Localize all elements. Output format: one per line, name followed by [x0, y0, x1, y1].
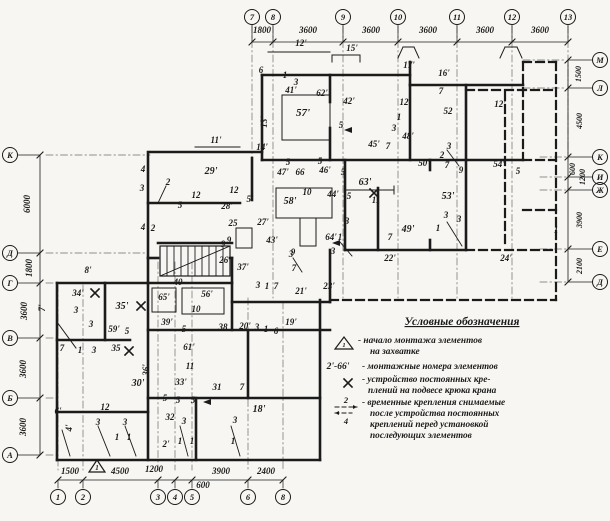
- element-number-label: 6: [259, 65, 264, 75]
- element-number-label: 5: [339, 120, 344, 130]
- element-number-label: 5: [178, 200, 183, 210]
- element-number-label: 9: [221, 239, 226, 249]
- legend-text: плений на подвесе крюка крана: [368, 385, 497, 396]
- dimension-text: 3600: [530, 25, 550, 35]
- element-number-label: 12: [400, 97, 410, 107]
- element-number-label: 2: [150, 223, 156, 233]
- dimension-text: 1800: [253, 25, 272, 35]
- dimension-text: 3600: [418, 25, 438, 35]
- legend-text: последующих элементов: [370, 430, 472, 441]
- element-number-label: 3: [95, 417, 101, 427]
- axis-bubble-label: Е: [596, 244, 603, 254]
- element-number-label: 1: [190, 436, 195, 446]
- dimension-text: 7': [37, 304, 47, 312]
- legend-text: - монтажные номера элементов: [362, 362, 498, 372]
- dimension-text: 1500: [574, 66, 583, 82]
- element-number-label: 7: [60, 343, 65, 353]
- legend-symbol: 2: [343, 395, 349, 405]
- element-number-label: 9: [227, 235, 232, 245]
- dimension-text: 3600: [475, 25, 495, 35]
- dimension-text: 3600: [19, 302, 29, 322]
- element-number-label: 3: [122, 417, 128, 427]
- element-number-label: 10: [303, 187, 313, 197]
- element-number-label: 3: [456, 214, 462, 224]
- element-number-label: 5: [176, 395, 181, 405]
- axis-bubble-label: 4: [172, 492, 177, 502]
- element-number-label: 7: [388, 232, 393, 242]
- element-number-label: 3: [232, 415, 238, 425]
- element-number-label: 12: [230, 185, 240, 195]
- element-number-label: 5: [191, 395, 196, 405]
- element-number-label: 59': [108, 324, 120, 334]
- element-number-label: 57': [296, 107, 310, 119]
- element-number-label: 20': [238, 321, 251, 331]
- legend-symbol: 1: [342, 342, 345, 349]
- axis-bubble-label: 2: [80, 492, 86, 502]
- element-number-label: 53': [442, 191, 455, 202]
- element-number-label: 5: [516, 166, 521, 176]
- element-number-label: 61': [183, 342, 195, 352]
- axis-bubble-label: 9: [341, 12, 346, 22]
- element-number-label: 7: [274, 281, 279, 291]
- dimension-text: 1200: [578, 169, 587, 185]
- element-number-label: 11: [372, 195, 381, 205]
- legend-text: креплений перед установкой: [370, 419, 488, 430]
- floor-plan-canvas: 112'15'17'16'61341'62'42'137125212'57'13…: [0, 0, 610, 521]
- element-number-label: 16': [438, 68, 450, 78]
- element-number-label: 7: [386, 141, 391, 151]
- dimension-text: 3600: [298, 25, 318, 35]
- element-number-label: 36': [141, 364, 151, 377]
- element-number-label: 15': [346, 43, 358, 53]
- thin-line: [398, 47, 403, 58]
- element-number-label: 1: [178, 436, 183, 446]
- legend-text: - начало монтажа элементов: [358, 336, 482, 346]
- element-number-label: 39': [160, 317, 173, 327]
- axis-bubble-label: К: [6, 150, 14, 160]
- axis-bubble-label: Д: [6, 248, 14, 258]
- axis-bubble-label: Ж: [595, 185, 605, 195]
- axis-bubble-label: В: [6, 333, 13, 343]
- element-number-label: 41': [284, 85, 297, 95]
- element-number-label: 45': [367, 139, 380, 149]
- arrowhead: [353, 405, 357, 409]
- element-number-label: 11': [210, 135, 222, 145]
- legend-symbol: 2'-66': [326, 362, 350, 372]
- element-number-label: 3: [344, 216, 350, 226]
- dimension-text: 2400: [256, 466, 276, 476]
- axis-bubble-label: 8: [271, 12, 276, 22]
- dimension-text: 600: [568, 163, 577, 175]
- element-number-label: 9: [459, 165, 464, 175]
- element-number-label: 3: [391, 123, 397, 133]
- leader-line: [158, 186, 166, 203]
- dimension-text: 3900: [575, 212, 584, 229]
- axis-bubble-label: 1: [56, 492, 60, 502]
- element-number-label: 3: [254, 322, 260, 332]
- element-number-label: 1: [115, 432, 120, 442]
- element-number-label: 7: [292, 263, 297, 273]
- element-number-label: 3: [288, 249, 294, 259]
- element-number-label: 54': [493, 159, 505, 169]
- element-number-label: 7: [240, 382, 245, 392]
- element-number-label: 24': [499, 253, 512, 263]
- axis-bubble-label: Б: [6, 393, 13, 403]
- axis-bubble-label: 8: [281, 492, 286, 502]
- element-number-label: 35': [115, 301, 129, 312]
- element-number-label: 63': [359, 177, 372, 188]
- fixture-rect: [236, 228, 252, 248]
- element-number-label: 12: [101, 402, 111, 412]
- legend-text: - устройство постоянных кре-: [362, 374, 490, 385]
- element-number-label: 66: [296, 167, 306, 177]
- element-number-label: 1: [554, 225, 559, 235]
- axis-bubble-label: Л: [596, 83, 604, 93]
- element-number-label: 33': [174, 377, 187, 387]
- element-number-label: 2: [165, 177, 171, 187]
- element-number-label: 43': [265, 235, 278, 245]
- dimension-text: 1200: [145, 464, 164, 474]
- leader-line: [62, 430, 70, 456]
- element-number-label: 5: [341, 167, 346, 177]
- element-number-label: 8': [84, 265, 92, 275]
- start-montage-number: 1: [95, 464, 99, 472]
- element-number-label: 32: [165, 412, 176, 422]
- axis-bubble-label: 3: [155, 492, 161, 502]
- legend-text: на захватке: [370, 347, 420, 357]
- element-number-label: 5: [182, 324, 187, 334]
- element-number-label: 37': [236, 262, 249, 272]
- legend-text: - временные крепления снимаемые: [362, 398, 505, 408]
- thin-line: [517, 47, 522, 58]
- element-number-label: 1: [265, 281, 270, 291]
- element-number-label: 12: [192, 190, 202, 200]
- element-number-label: 28': [220, 201, 233, 211]
- dimension-text: 4500: [575, 113, 584, 130]
- element-number-label: 30': [131, 378, 145, 389]
- element-number-label: 14': [256, 142, 268, 152]
- element-number-label: 4': [64, 424, 74, 433]
- dimension-text: 3600: [18, 360, 28, 380]
- element-number-label: 7: [439, 86, 444, 96]
- element-number-label: 3: [443, 210, 449, 220]
- element-number-label: 1: [231, 436, 236, 446]
- element-number-label: 22': [383, 253, 396, 263]
- element-number-label: 1: [78, 345, 83, 355]
- element-number-label: 3: [91, 345, 97, 355]
- element-number-label: 1: [436, 223, 441, 233]
- element-number-label: 47': [276, 167, 289, 177]
- element-number-label: 3: [88, 319, 94, 329]
- element-number-label: 58': [284, 196, 297, 207]
- element-number-label: 5: [125, 326, 130, 336]
- element-number-label: 40: [173, 277, 184, 287]
- element-number-label: 3: [139, 183, 145, 193]
- element-number-label: 7: [445, 160, 450, 170]
- element-number-label: 56': [201, 289, 213, 299]
- element-number-label: 27': [256, 217, 269, 227]
- element-number-label: 21': [294, 286, 307, 296]
- leader-line: [98, 426, 110, 456]
- element-number-label: 17': [403, 60, 415, 70]
- leader-line: [447, 222, 462, 246]
- axis-bubble-label: М: [595, 55, 604, 65]
- dimension-text: 6000: [22, 195, 32, 214]
- element-number-label: 62': [316, 88, 328, 98]
- element-number-label: 3: [446, 141, 452, 151]
- legend-symbol: 4: [343, 416, 348, 426]
- element-number-label: 35: [111, 343, 122, 353]
- element-number-label: 44': [326, 189, 339, 199]
- axis-bubble-label: 10: [394, 12, 403, 22]
- element-number-label: 34': [71, 288, 84, 298]
- element-number-label: 3: [330, 246, 336, 256]
- element-number-label: 42': [342, 96, 355, 106]
- element-number-label: 12': [295, 38, 307, 48]
- element-number-label: 31: [212, 382, 222, 392]
- element-number-label: 19': [285, 317, 297, 327]
- axis-bubble-label: И: [596, 172, 604, 182]
- element-number-label: 11: [186, 361, 195, 371]
- axis-bubble-label: 5: [190, 492, 195, 502]
- axis-bubble-label: 12: [508, 12, 517, 22]
- element-number-label: 1: [338, 232, 343, 242]
- axis-bubble-label: 7: [250, 12, 255, 22]
- element-number-label: 13': [259, 116, 269, 128]
- element-number-label: 12': [494, 99, 506, 109]
- plan-drawing: 112'15'17'16'61341'62'42'137125212'57'13…: [0, 0, 610, 521]
- axis-bubble-label: К: [596, 152, 604, 162]
- dimension-text: 3600: [18, 418, 28, 438]
- dimension-text: 3600: [361, 25, 381, 35]
- element-number-label: 1: [283, 70, 288, 80]
- element-number-label: 2': [161, 439, 170, 449]
- dimension-text: 600: [196, 480, 210, 490]
- element-number-label: 6: [274, 326, 279, 336]
- element-number-label: 4: [140, 164, 146, 174]
- element-number-label: 25: [228, 218, 239, 228]
- element-number-label: 3: [181, 416, 187, 426]
- legend-title: Условные обозначения: [405, 316, 520, 328]
- element-number-label: 26': [218, 255, 231, 265]
- dimension-text: 4500: [110, 466, 130, 476]
- dimension-text: 2100: [575, 258, 584, 275]
- element-number-label: 1: [397, 112, 402, 122]
- element-number-label: 46': [318, 165, 331, 175]
- fixture-rect: [300, 218, 316, 246]
- thin-line: [500, 47, 505, 58]
- axis-bubble-label: Д: [596, 277, 604, 287]
- element-number-label: 4: [140, 222, 146, 232]
- thin-line: [414, 47, 419, 58]
- element-number-label: 49': [401, 224, 415, 235]
- element-number-label: 23': [322, 281, 335, 291]
- element-number-label: 64': [325, 232, 337, 242]
- element-number-label: 1: [264, 324, 269, 334]
- element-number-label: 50': [418, 158, 430, 168]
- element-number-label: 65': [158, 292, 170, 302]
- element-number-label: 18': [253, 404, 266, 415]
- element-number-label: 1: [127, 432, 132, 442]
- element-number-label: 29': [204, 166, 218, 177]
- element-number-label: 48': [401, 131, 414, 141]
- axis-bubble-label: 11: [453, 12, 461, 22]
- mount-flag-icon: [203, 399, 211, 405]
- element-number-label: 5: [286, 157, 291, 167]
- element-number-label: 3: [73, 305, 79, 315]
- dimension-text: 1800: [24, 259, 34, 278]
- dimension-text: 3900: [211, 466, 231, 476]
- axis-bubble-label: 6: [246, 492, 251, 502]
- element-number-label: 6': [54, 406, 62, 416]
- element-number-label: 5': [246, 194, 254, 204]
- dimension-text: 1500: [61, 466, 80, 476]
- element-number-label: 52: [444, 106, 454, 116]
- axis-bubble-label: 13: [564, 12, 573, 22]
- element-number-label: 3: [255, 280, 261, 290]
- axis-bubble-label: Г: [6, 278, 13, 288]
- element-number-label: 10: [192, 304, 202, 314]
- element-number-label: 38: [218, 322, 229, 332]
- element-number-label: 5: [163, 393, 168, 403]
- mount-flag-icon: [344, 127, 352, 133]
- axis-bubble-label: А: [6, 450, 13, 460]
- legend-text: после устройства постоянных: [370, 408, 500, 419]
- element-number-label: 5: [347, 191, 352, 201]
- element-number-label: 2: [439, 150, 445, 160]
